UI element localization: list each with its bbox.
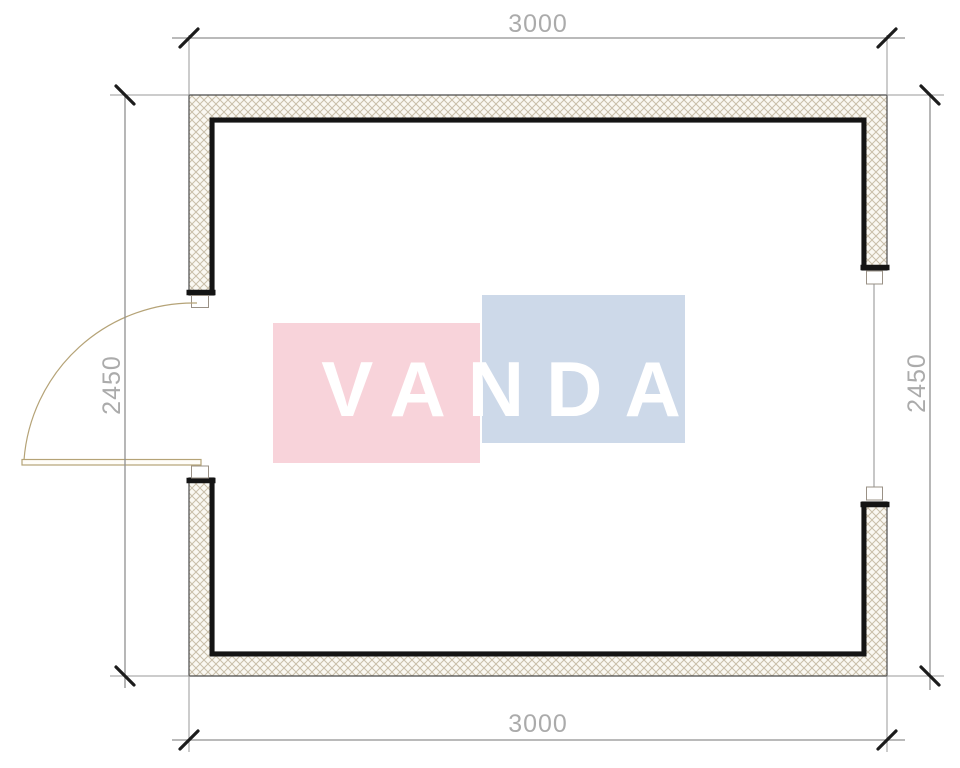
wall-lower-section xyxy=(189,478,887,676)
watermark-text: VANDA xyxy=(252,350,752,428)
dimension-label-left: 2450 xyxy=(98,310,126,460)
floor-plan-page: VANDA 3000 3000 2450 2450 xyxy=(0,0,960,768)
wall-inner-face-lower xyxy=(212,478,864,654)
door-jamb-left-top xyxy=(192,296,209,308)
dimension-label-right: 2450 xyxy=(903,308,931,458)
dimension-label-top: 3000 xyxy=(463,10,613,38)
door-jamb-left-bottom xyxy=(192,466,209,478)
dimension-label-bottom: 3000 xyxy=(463,710,613,738)
wall-upper-section xyxy=(189,95,887,295)
door-leaf xyxy=(22,460,201,466)
window-jamb-right-bottom xyxy=(867,487,883,500)
window-jamb-right-top xyxy=(867,271,883,284)
wall-inner-face-upper xyxy=(212,120,864,295)
right-opening xyxy=(867,271,883,500)
